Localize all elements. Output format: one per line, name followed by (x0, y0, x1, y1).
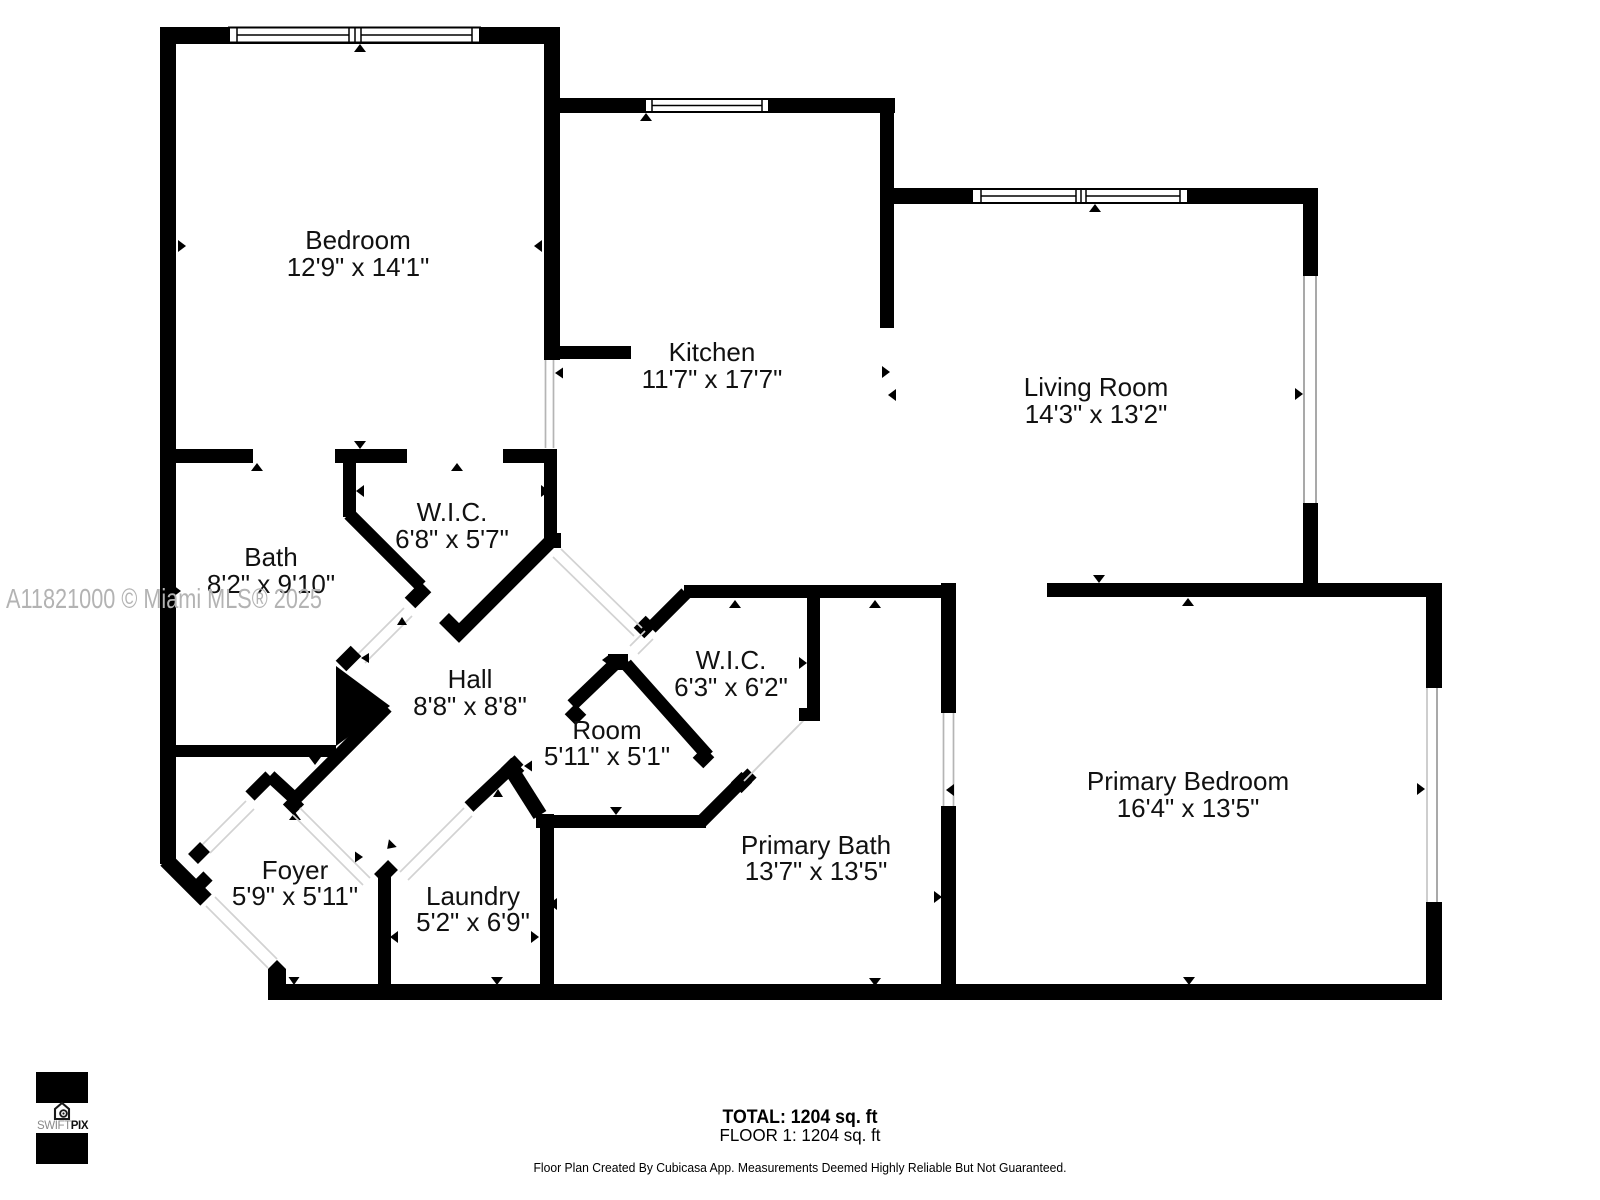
svg-text:14'3" x 13'2": 14'3" x 13'2" (1025, 399, 1168, 429)
svg-text:Floor Plan Created By Cubicasa: Floor Plan Created By Cubicasa App. Meas… (534, 1160, 1067, 1175)
svg-text:13'7" x 13'5": 13'7" x 13'5" (745, 856, 888, 886)
svg-text:Primary Bedroom: Primary Bedroom (1087, 766, 1289, 796)
svg-text:6'3" x 6'2": 6'3" x 6'2" (674, 672, 788, 702)
svg-text:Hall: Hall (448, 664, 493, 694)
svg-text:FLOOR 1: 1204 sq. ft: FLOOR 1: 1204 sq. ft (720, 1125, 881, 1145)
svg-text:W.I.C.: W.I.C. (696, 645, 767, 675)
svg-text:8'8" x 8'8": 8'8" x 8'8" (413, 691, 527, 721)
svg-text:Living Room: Living Room (1024, 372, 1169, 402)
svg-text:16'4" x 13'5": 16'4" x 13'5" (1117, 793, 1260, 823)
svg-text:5'2" x 6'9": 5'2" x 6'9" (416, 907, 530, 937)
svg-text:Bedroom: Bedroom (305, 225, 411, 255)
svg-text:5'9" x 5'11": 5'9" x 5'11" (232, 881, 358, 911)
svg-text:12'9" x 14'1": 12'9" x 14'1" (287, 252, 430, 282)
svg-text:11'7" x 17'7": 11'7" x 17'7" (642, 364, 783, 394)
svg-text:5'11" x 5'1": 5'11" x 5'1" (544, 741, 670, 771)
svg-text:Bath: Bath (244, 542, 298, 572)
svg-text:Kitchen: Kitchen (669, 337, 756, 367)
svg-text:A11821000 © Miami MLS® 2025: A11821000 © Miami MLS® 2025 (6, 583, 322, 614)
svg-text:W.I.C.: W.I.C. (417, 497, 488, 527)
svg-text:6'8" x 5'7": 6'8" x 5'7" (395, 524, 509, 554)
svg-text:SWIFTPIX: SWIFTPIX (37, 1120, 89, 1132)
